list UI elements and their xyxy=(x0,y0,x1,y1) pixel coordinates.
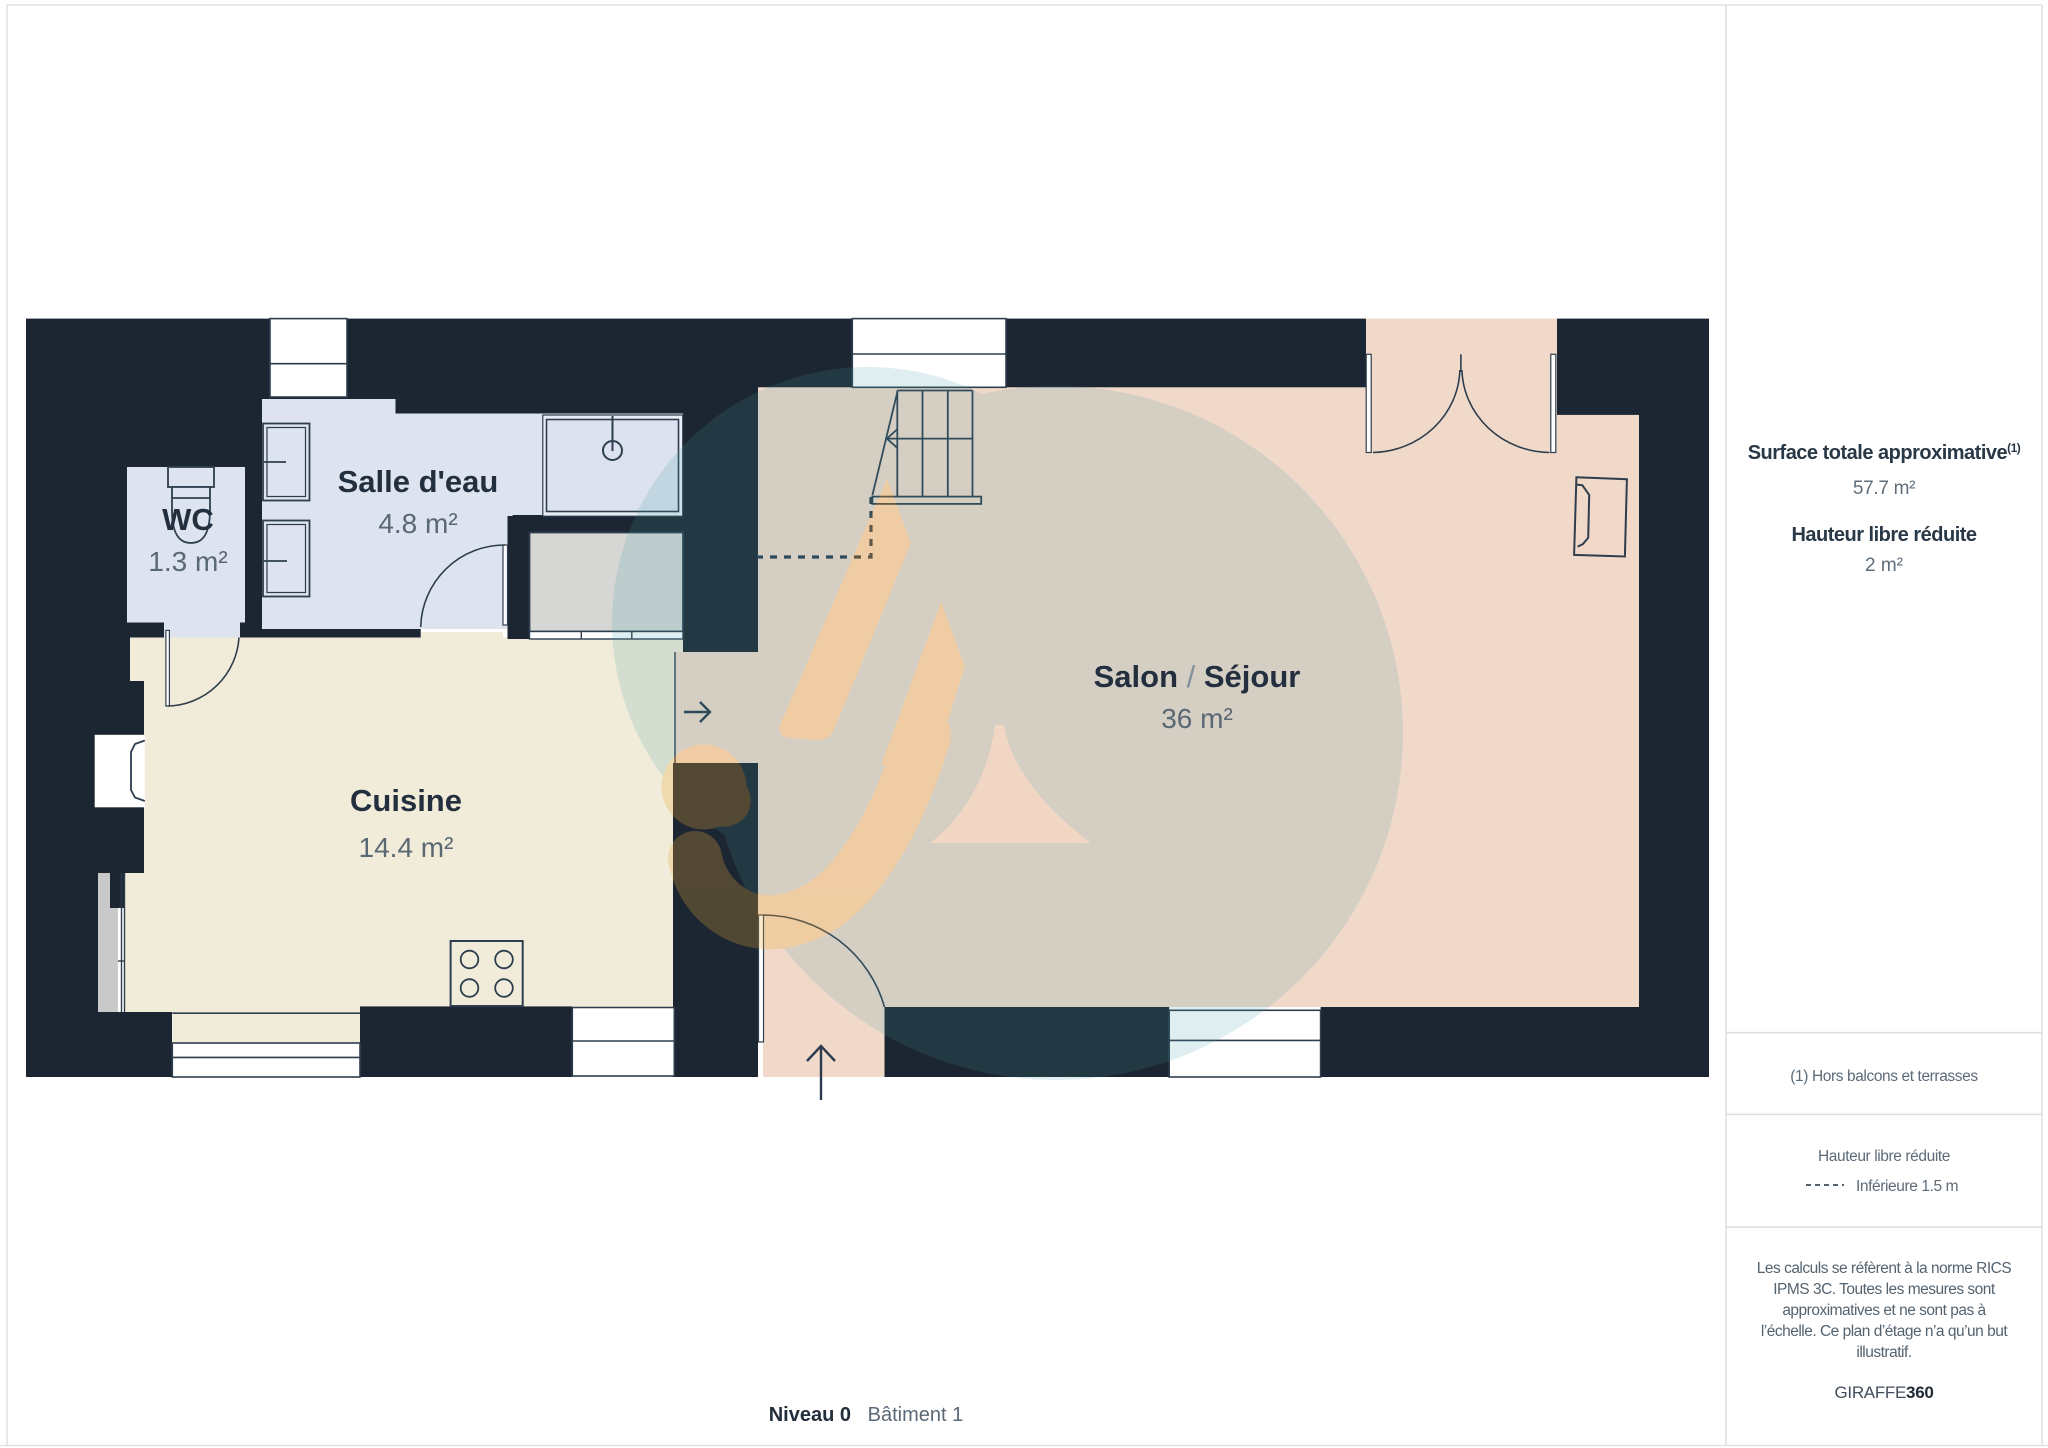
svg-text:57.7 m²: 57.7 m² xyxy=(1853,478,1915,499)
svg-text:1.3 m²: 1.3 m² xyxy=(148,546,227,577)
svg-text:Inférieure 1.5 m: Inférieure 1.5 m xyxy=(1856,1178,1958,1195)
svg-text:Les calculs se réfèrent à la n: Les calculs se réfèrent à la norme RICS xyxy=(1757,1260,2012,1277)
svg-text:2 m²: 2 m² xyxy=(1865,555,1903,576)
svg-text:approximatives et ne sont pas: approximatives et ne sont pas à xyxy=(1782,1302,1986,1319)
svg-text:Salle d'eau: Salle d'eau xyxy=(338,464,499,499)
svg-text:36 m²: 36 m² xyxy=(1161,703,1233,734)
svg-text:Salon / Séjour: Salon / Séjour xyxy=(1094,659,1301,694)
svg-text:Cuisine: Cuisine xyxy=(350,783,462,818)
svg-text:WC: WC xyxy=(162,502,214,537)
svg-text:Surface totale approximative(1: Surface totale approximative(1) xyxy=(1748,441,2021,464)
svg-text:illustratif.: illustratif. xyxy=(1856,1344,1911,1361)
svg-text:Hauteur libre réduite: Hauteur libre réduite xyxy=(1791,524,1976,546)
svg-text:GIRAFFE360: GIRAFFE360 xyxy=(1834,1383,1933,1402)
svg-text:IPMS 3C. Toutes les mesures so: IPMS 3C. Toutes les mesures sont xyxy=(1773,1281,1996,1298)
svg-text:14.4 m²: 14.4 m² xyxy=(359,832,454,863)
svg-text:l’échelle. Ce plan d’étage n’a: l’échelle. Ce plan d’étage n’a qu’un but xyxy=(1761,1323,2008,1340)
svg-text:Hauteur libre réduite: Hauteur libre réduite xyxy=(1818,1148,1950,1165)
svg-text:(1) Hors balcons et terrasses: (1) Hors balcons et terrasses xyxy=(1790,1068,1978,1085)
svg-text:Niveau 0 Bâtiment 1: Niveau 0 Bâtiment 1 xyxy=(769,1404,964,1426)
svg-text:4.8 m²: 4.8 m² xyxy=(378,508,457,539)
